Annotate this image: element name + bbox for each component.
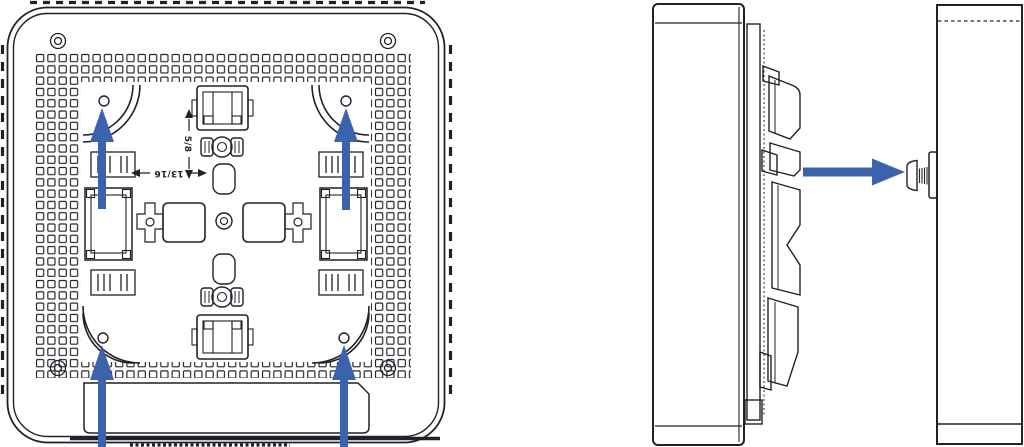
grille-left-top — [91, 152, 135, 177]
wall-body — [937, 5, 1022, 444]
keyhole-right — [285, 203, 311, 242]
thumb-screw-top — [201, 137, 243, 157]
grille-left-bottom — [91, 270, 135, 295]
grille-right-top — [319, 152, 363, 177]
dim-arrowhead-right — [198, 169, 207, 177]
installation-diagram: 13/16 5/8 — [0, 0, 1024, 447]
mount-arrow-bottom-left — [90, 345, 114, 447]
screw-anchor-plate — [929, 152, 937, 198]
keyhole-left — [137, 203, 163, 242]
wall-cross-section — [937, 5, 1022, 444]
center-screw — [216, 213, 232, 229]
mounting-hole-top-left — [99, 96, 109, 106]
wall-mount-screw — [907, 152, 937, 198]
center-pad-left — [163, 203, 205, 242]
dimension-label-horizontal: 13/16 — [154, 168, 183, 178]
bottom-label-plate — [84, 383, 369, 433]
screw-callout-arrow — [803, 159, 905, 186]
device-body-side — [653, 4, 744, 445]
mounting-hole-bottom-left — [98, 333, 108, 343]
screw-head — [907, 161, 917, 191]
bracket-left — [85, 188, 132, 260]
slot-bottom — [213, 254, 235, 284]
callout-arrows — [90, 108, 905, 447]
mounting-hole-bottom-right — [339, 333, 349, 343]
dim-arrowhead-down — [185, 170, 193, 179]
cable-clamp-bottom — [192, 315, 253, 359]
screw-threads — [920, 167, 928, 185]
cable-clamp-top — [192, 86, 253, 130]
mounting-plate-back-view — [3, 3, 451, 446]
mounting-holes — [98, 96, 351, 343]
back-mounting-plate-side — [745, 24, 764, 424]
thumb-screw-bottom — [201, 287, 243, 307]
mounting-hole-top-right — [341, 96, 351, 106]
dimension-label-vertical: 5/8 — [182, 136, 192, 152]
slot-top — [213, 164, 235, 194]
center-pad-right — [243, 203, 285, 242]
center-cluster — [137, 86, 311, 359]
mounting-clips-side — [760, 66, 800, 390]
grille-right-bottom — [319, 270, 363, 295]
device-side-view — [653, 4, 1022, 445]
